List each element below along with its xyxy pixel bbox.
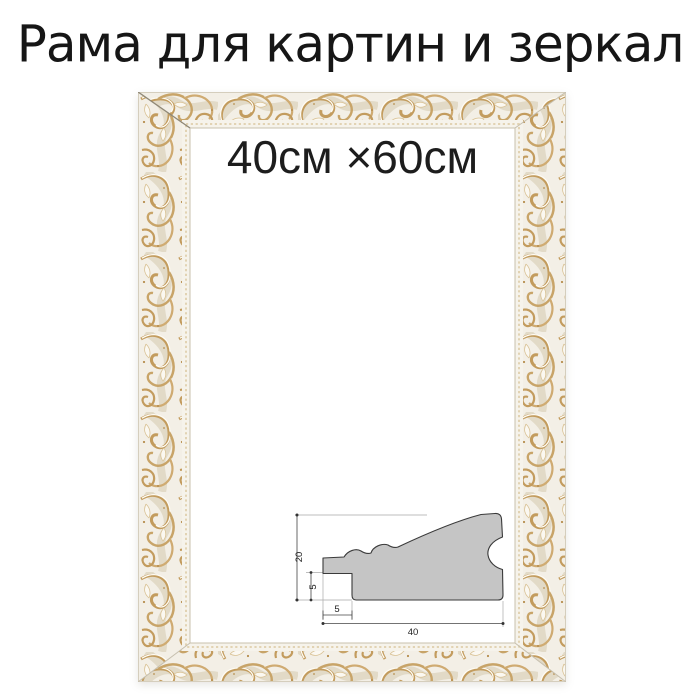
dim-rebate-width-label: 5	[334, 604, 339, 615]
product-title: Рама для картин и зеркал	[0, 13, 700, 74]
profile-diagram-graphic: 20 5 5 40	[290, 495, 510, 640]
profile-shape	[323, 513, 503, 600]
dim-dot	[310, 599, 313, 602]
dim-width-label: 40	[408, 627, 419, 638]
dim-dot	[296, 514, 299, 517]
dim-height-label: 20	[294, 552, 305, 563]
profile-cross-section-diagram: 20 5 5 40	[290, 495, 510, 640]
dim-dot	[296, 599, 299, 602]
dim-rebate-height-label: 5	[308, 584, 319, 589]
size-label: 40см ×60см	[190, 132, 515, 182]
dim-dot	[322, 622, 325, 625]
dim-dot	[502, 622, 505, 625]
dim-dot	[310, 571, 313, 574]
product-image: Рама для картин и зеркал	[0, 0, 700, 700]
